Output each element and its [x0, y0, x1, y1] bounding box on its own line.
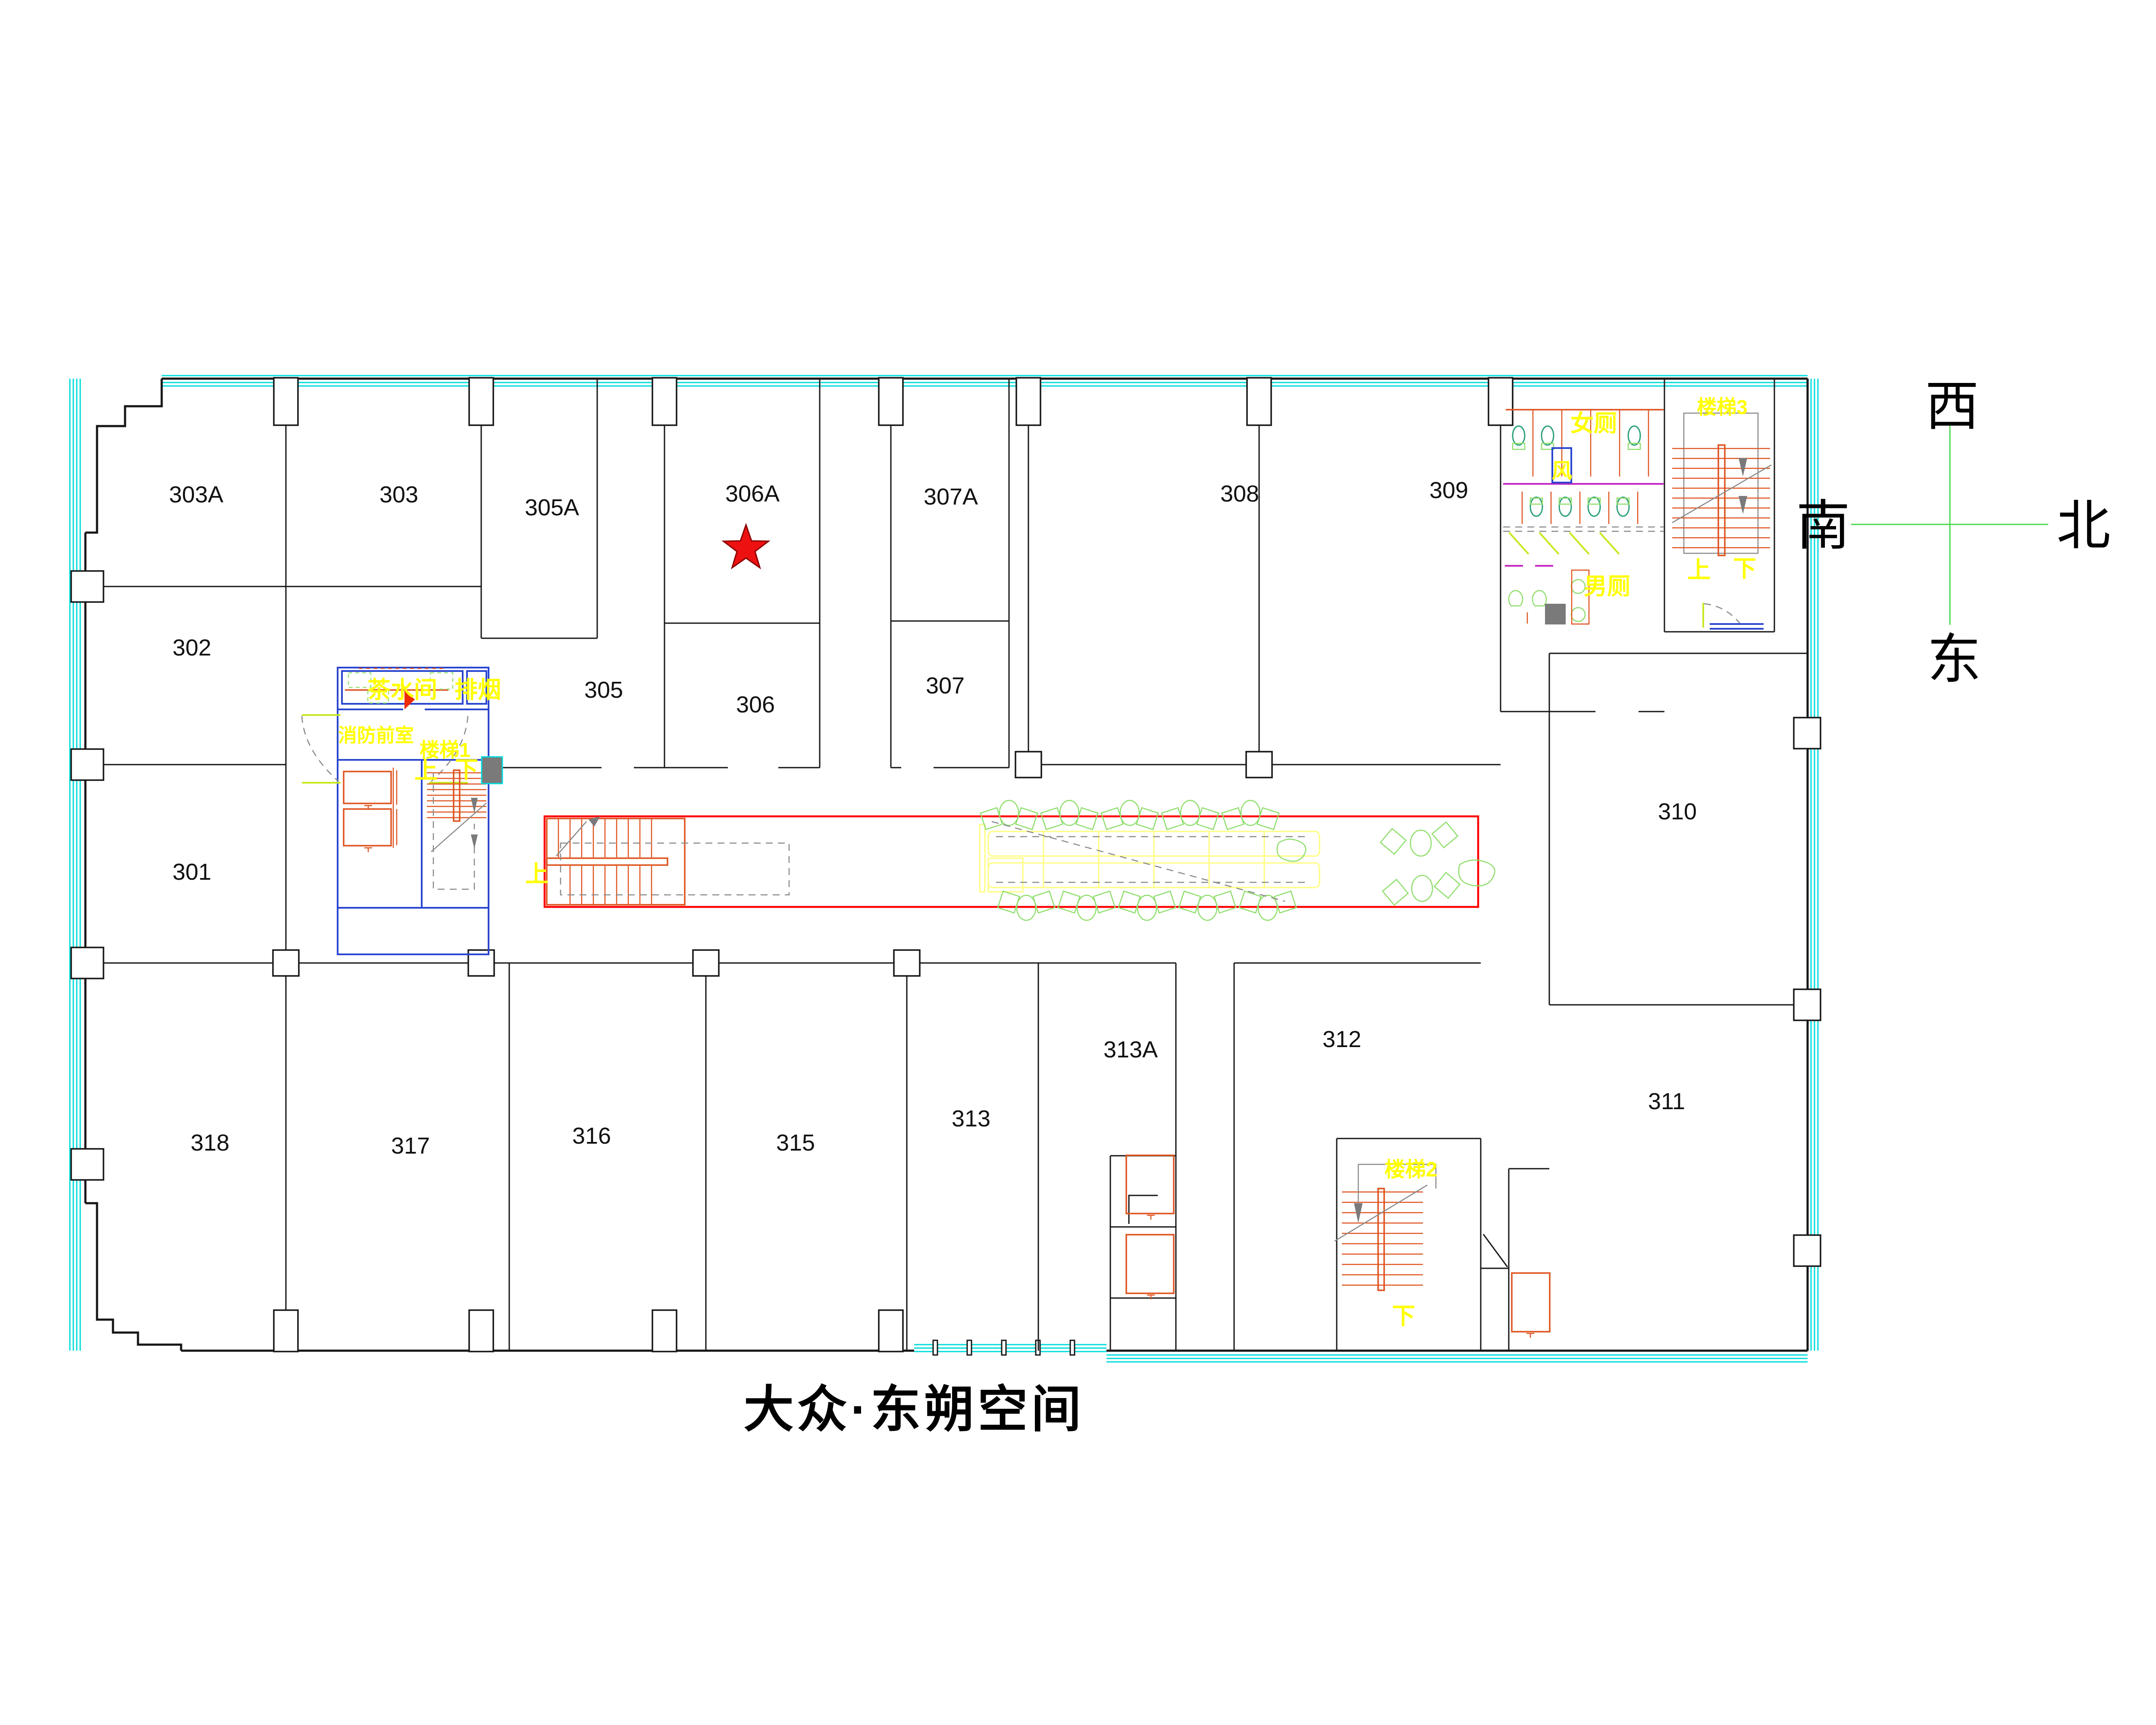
stair2-label: 楼梯2 — [1385, 1158, 1438, 1181]
stair-2 — [1335, 1164, 1436, 1290]
compass-east-label: 东 — [1927, 628, 1981, 691]
plan-title: 大众·东朔空间 — [744, 1381, 1085, 1437]
stair3-up-label: 上 — [1687, 557, 1711, 583]
room-label-309: 309 — [1429, 477, 1468, 503]
duct-box — [482, 757, 502, 784]
room-label-301: 301 — [172, 859, 211, 885]
fire-lobby-label: 消防前室 — [338, 724, 414, 746]
room-label-315: 315 — [776, 1130, 815, 1156]
room-label-316: 316 — [572, 1123, 611, 1149]
room-label-312: 312 — [1322, 1026, 1361, 1052]
smoke-exhaust-label: 排烟 — [454, 677, 501, 703]
long-table — [980, 825, 1319, 892]
core-elevator-1 — [344, 768, 397, 810]
tea-room-label: 茶水间 — [367, 677, 437, 703]
room-label-302: 302 — [172, 635, 211, 661]
room-label-303: 303 — [379, 482, 418, 508]
floor-plan-page: 303A 303 305A 306A 307A 308 309 302 301 … — [0, 0, 2156, 1725]
room-label-305: 305 — [584, 677, 623, 703]
toilet-block — [1503, 410, 1664, 624]
table-chairs — [981, 800, 1296, 920]
room-label-306A: 306A — [725, 481, 780, 507]
floor-plan-drawing: 303A 303 305A 306A 307A 308 309 302 301 … — [0, 0, 2156, 1725]
room-label-307: 307 — [926, 673, 965, 699]
core-elevator-2 — [344, 806, 397, 852]
corridor-stair-up-label: 上 — [525, 861, 548, 887]
room-label-306: 306 — [736, 692, 775, 718]
mens-toilet-label: 男厕 — [1584, 574, 1630, 599]
room-label-308: 308 — [1220, 481, 1259, 507]
toilet-fixtures — [1513, 426, 1640, 516]
vent-label: 风 — [1551, 460, 1572, 483]
room-labels: 303A 303 305A 306A 307A 308 309 302 301 … — [169, 477, 1697, 1159]
compass-west-label: 西 — [1925, 375, 1979, 438]
room311-elevator — [1512, 1273, 1550, 1338]
service-core — [302, 668, 502, 954]
stair-3 — [1672, 413, 1771, 629]
compass-south-label: 南 — [1796, 495, 1850, 557]
room-label-313: 313 — [952, 1106, 990, 1132]
room-label-317: 317 — [391, 1133, 430, 1159]
room-label-318: 318 — [191, 1130, 229, 1156]
room-label-307A: 307A — [924, 484, 978, 510]
corridor-furniture — [980, 800, 1495, 920]
stair1-up-label: 上 — [414, 758, 438, 784]
stair2-down-label: 下 — [1392, 1303, 1415, 1329]
location-star-icon — [724, 525, 769, 568]
stair3-down-label: 下 — [1733, 556, 1756, 582]
stair3-label: 楼梯3 — [1697, 396, 1748, 418]
room-label-303A: 303A — [169, 482, 223, 508]
stair1-down-label: 下 — [455, 757, 478, 783]
corridor-stair — [547, 816, 789, 905]
mens-fixtures — [1505, 566, 1589, 624]
stall-doors — [1503, 531, 1664, 554]
room-label-305A: 305A — [525, 495, 579, 521]
compass-north-label: 北 — [2057, 495, 2111, 557]
columns — [71, 378, 1821, 1352]
curtain-wall-glazing — [70, 376, 1818, 1362]
interior-walls — [85, 379, 1808, 1351]
room-label-311: 311 — [1648, 1088, 1685, 1114]
stair-1 — [427, 770, 486, 889]
room-label-310: 310 — [1658, 799, 1697, 825]
room-label-313A: 313A — [1103, 1037, 1158, 1063]
womens-toilet-label: 女厕 — [1570, 411, 1617, 436]
compass: 西 南 北 东 — [1796, 375, 2111, 691]
